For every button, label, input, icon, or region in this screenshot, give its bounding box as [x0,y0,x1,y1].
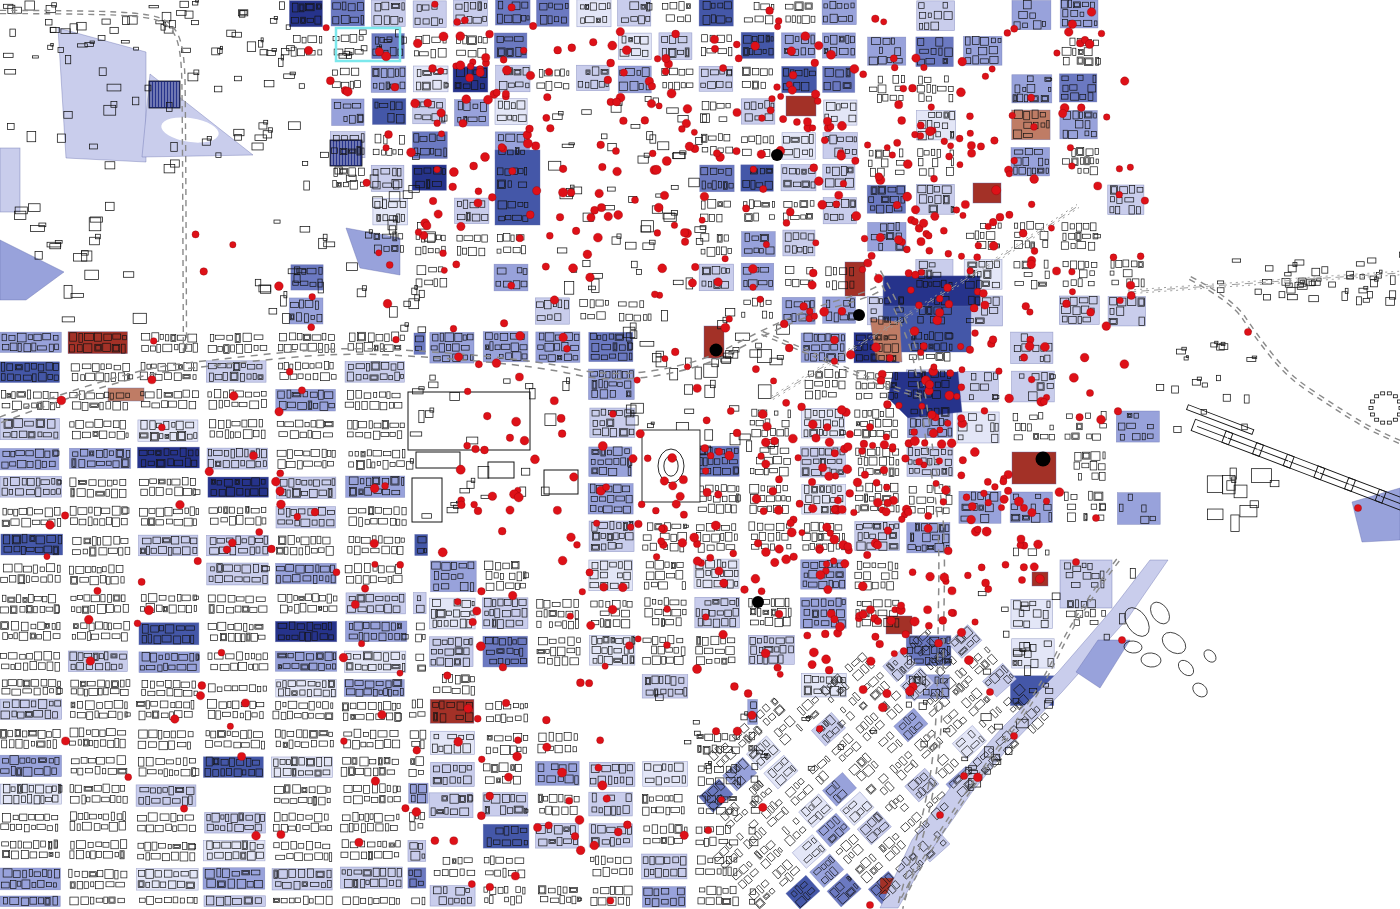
map-root [0,0,1400,909]
map-canvas[interactable] [0,0,1400,909]
